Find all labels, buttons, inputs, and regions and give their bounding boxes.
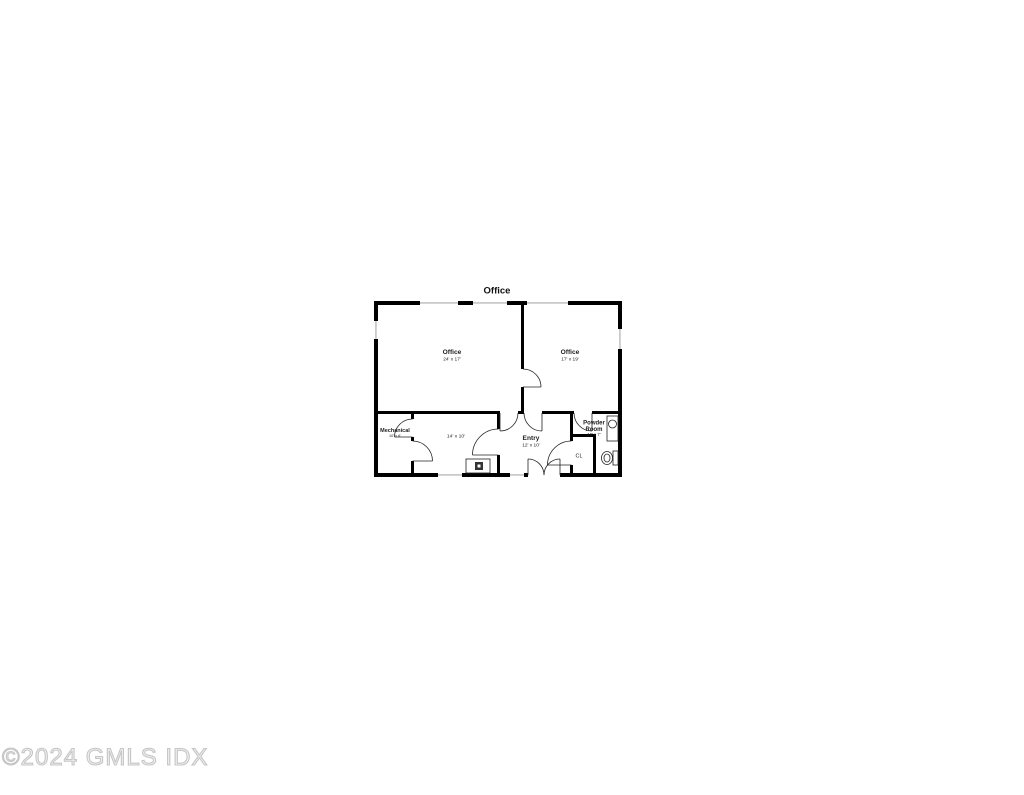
floor-plan-drawing <box>374 301 622 477</box>
room-label-office-main: Office 24' x 17' <box>443 348 462 361</box>
page-background: Office <box>0 0 1024 795</box>
room-label-powder-room: Powder Room 10' x 7' <box>583 420 605 437</box>
stove-icon <box>466 459 490 473</box>
interior-walls <box>374 305 622 473</box>
room-label-entry: Entry 12' x 10' <box>522 434 540 447</box>
room-label-14x10: 14' x 10' <box>447 433 465 439</box>
room-label-office-second: Office 17' x 19' <box>561 348 580 361</box>
sink-icon <box>607 416 618 441</box>
room-label-closet: CL <box>576 453 583 459</box>
watermark: ©2024 GMLS IDX <box>2 744 208 772</box>
floor-plan: Office <box>374 301 622 477</box>
window-icon <box>375 302 620 475</box>
door-swings <box>395 369 593 475</box>
toilet-icon <box>602 451 619 465</box>
plan-title: Office <box>484 286 511 297</box>
outer-walls <box>374 301 622 477</box>
room-label-mechanical: Mechanical 10' x 6' <box>380 428 410 439</box>
